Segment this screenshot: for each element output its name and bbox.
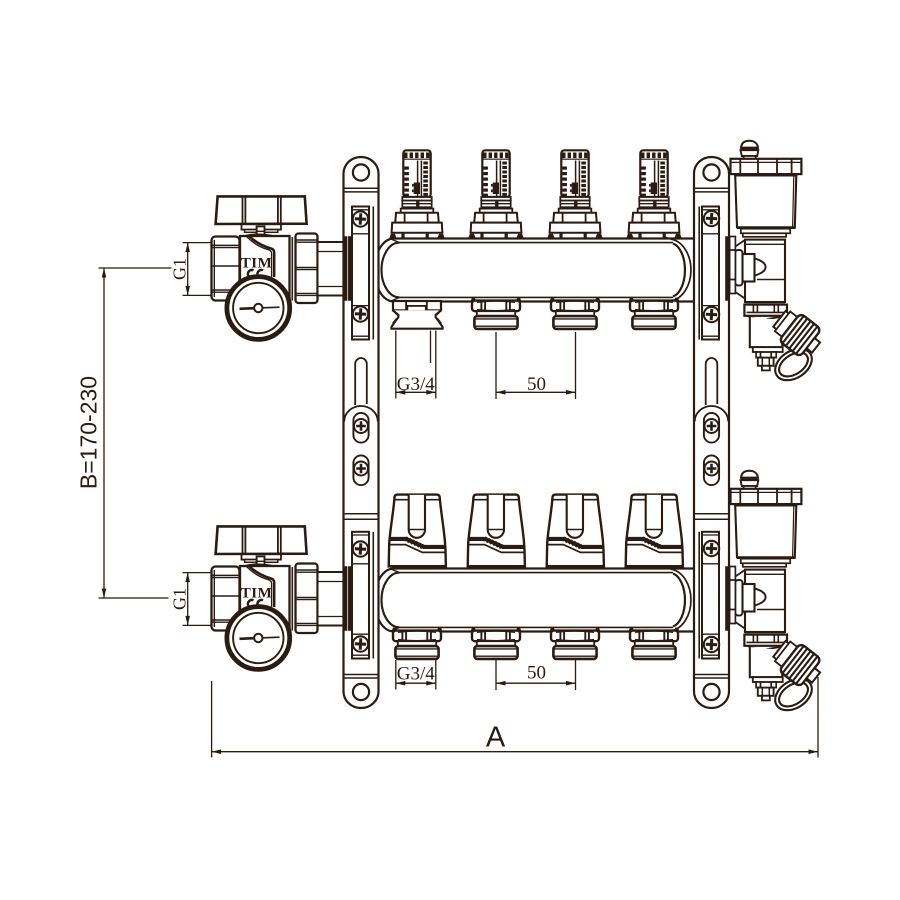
svg-text:G1: G1	[170, 258, 190, 280]
svg-text:50: 50	[527, 374, 546, 395]
svg-text:G3/4: G3/4	[397, 664, 436, 685]
svg-text:A: A	[486, 722, 506, 754]
svg-text:B=170-230: B=170-230	[76, 376, 102, 489]
svg-text:TIM: TIM	[241, 256, 273, 272]
svg-text:50: 50	[527, 663, 546, 684]
svg-text:G1: G1	[170, 588, 190, 610]
svg-text:G3/4: G3/4	[397, 374, 436, 395]
